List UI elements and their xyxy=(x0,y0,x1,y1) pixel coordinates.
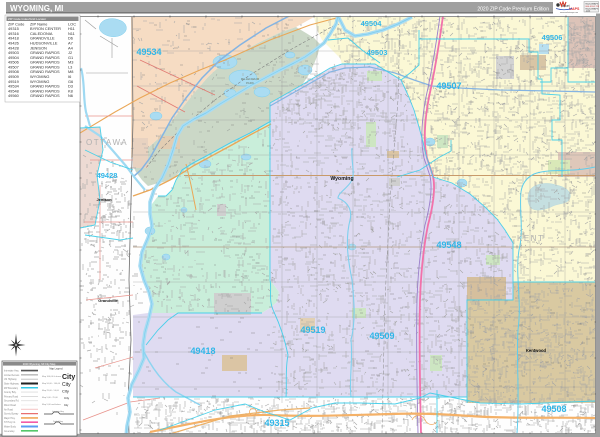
svg-text:County Bdy.: County Bdy. xyxy=(4,391,17,394)
svg-text:Kentwood: Kentwood xyxy=(526,348,547,353)
svg-text:GRAND RAPIDS: GRAND RAPIDS xyxy=(30,93,60,98)
svg-text:City: City xyxy=(62,382,71,388)
svg-text:Interstate Hwy: Interstate Hwy xyxy=(52,410,64,413)
svg-text:Minor Road: Minor Road xyxy=(4,404,17,407)
svg-text:Grandville: Grandville xyxy=(98,298,118,303)
svg-text:Wyoming: Wyoming xyxy=(330,176,353,182)
svg-text:49506: 49506 xyxy=(542,33,563,42)
svg-text:49503: 49503 xyxy=(367,48,388,57)
svg-text:49560: 49560 xyxy=(8,93,20,98)
svg-text:49509: 49509 xyxy=(369,331,394,341)
svg-text:49519: 49519 xyxy=(300,325,325,335)
svg-text:Water Body: Water Body xyxy=(4,426,17,429)
svg-text:Divided Hwy: Divided Hwy xyxy=(53,421,63,423)
svg-text:Map 100,00 & above: Map 100,00 & above xyxy=(42,376,62,378)
svg-text:Secondary Rd.: Secondary Rd. xyxy=(4,400,20,403)
svg-text:Map Legend: Map Legend xyxy=(49,368,63,371)
svg-text:PARK: PARK xyxy=(246,81,254,85)
svg-text:ZIP Code Index/Grid Locator: ZIP Code Index/Grid Locator xyxy=(8,17,46,21)
svg-text:Scenic Byway: Scenic Byway xyxy=(4,414,19,416)
svg-text:Primary Road: Primary Road xyxy=(4,395,19,398)
svg-text:City: City xyxy=(64,396,70,400)
svg-text:2020 ZIP Code Premium Edition: 2020 ZIP Code Premium Edition xyxy=(477,7,549,13)
svg-text:City: City xyxy=(62,389,69,394)
svg-text:ZIP Boundary: ZIP Boundary xyxy=(4,387,19,390)
svg-text:Map 5,00 - 25,00: Map 5,00 - 25,00 xyxy=(42,397,59,399)
svg-text:WYOMING, MI: WYOMING, MI xyxy=(10,4,63,13)
svg-text:Major Hwy.: Major Hwy. xyxy=(4,417,16,420)
svg-text:49534: 49534 xyxy=(136,47,161,57)
svg-text:OTTAWA: OTTAWA xyxy=(86,138,128,147)
svg-text:City: City xyxy=(62,374,75,381)
svg-text:N6: N6 xyxy=(68,93,73,98)
svg-text:State Highway: State Highway xyxy=(4,383,20,386)
svg-text:49548: 49548 xyxy=(436,240,461,250)
svg-text:Map 5,00 and below: Map 5,00 and below xyxy=(42,404,61,406)
svg-text:City: City xyxy=(64,404,69,407)
svg-text:49315: 49315 xyxy=(264,418,289,428)
svg-text:49507: 49507 xyxy=(436,81,461,91)
svg-text:49504: 49504 xyxy=(361,19,383,28)
svg-text:49428: 49428 xyxy=(97,171,118,180)
svg-text:www.marketmaps.com: www.marketmaps.com xyxy=(560,11,579,14)
svg-text:Map 50,00 - 100,00: Map 50,00 - 100,00 xyxy=(42,383,61,385)
svg-text:Interstate Hwy.: Interstate Hwy. xyxy=(4,370,20,373)
svg-text:Map 25,00 - 50,00: Map 25,00 - 50,00 xyxy=(42,390,60,392)
svg-text:ST Hwy Int.: ST Hwy Int. xyxy=(4,421,16,424)
svg-text:Jenison: Jenison xyxy=(96,197,112,202)
svg-text:49418: 49418 xyxy=(190,346,215,356)
svg-text:2020 Wyoming, MI City Map: 2020 Wyoming, MI City Map xyxy=(23,362,56,366)
svg-text:.com: .com xyxy=(586,11,591,13)
svg-text:Air Road: Air Road xyxy=(4,408,14,411)
svg-text:Greenway: Greenway xyxy=(4,430,15,433)
svg-text:US Highway: US Highway xyxy=(4,379,17,381)
svg-text:49508: 49508 xyxy=(541,404,566,414)
svg-text:Limited Access: Limited Access xyxy=(4,374,20,377)
svg-text:KENT: KENT xyxy=(517,234,544,243)
